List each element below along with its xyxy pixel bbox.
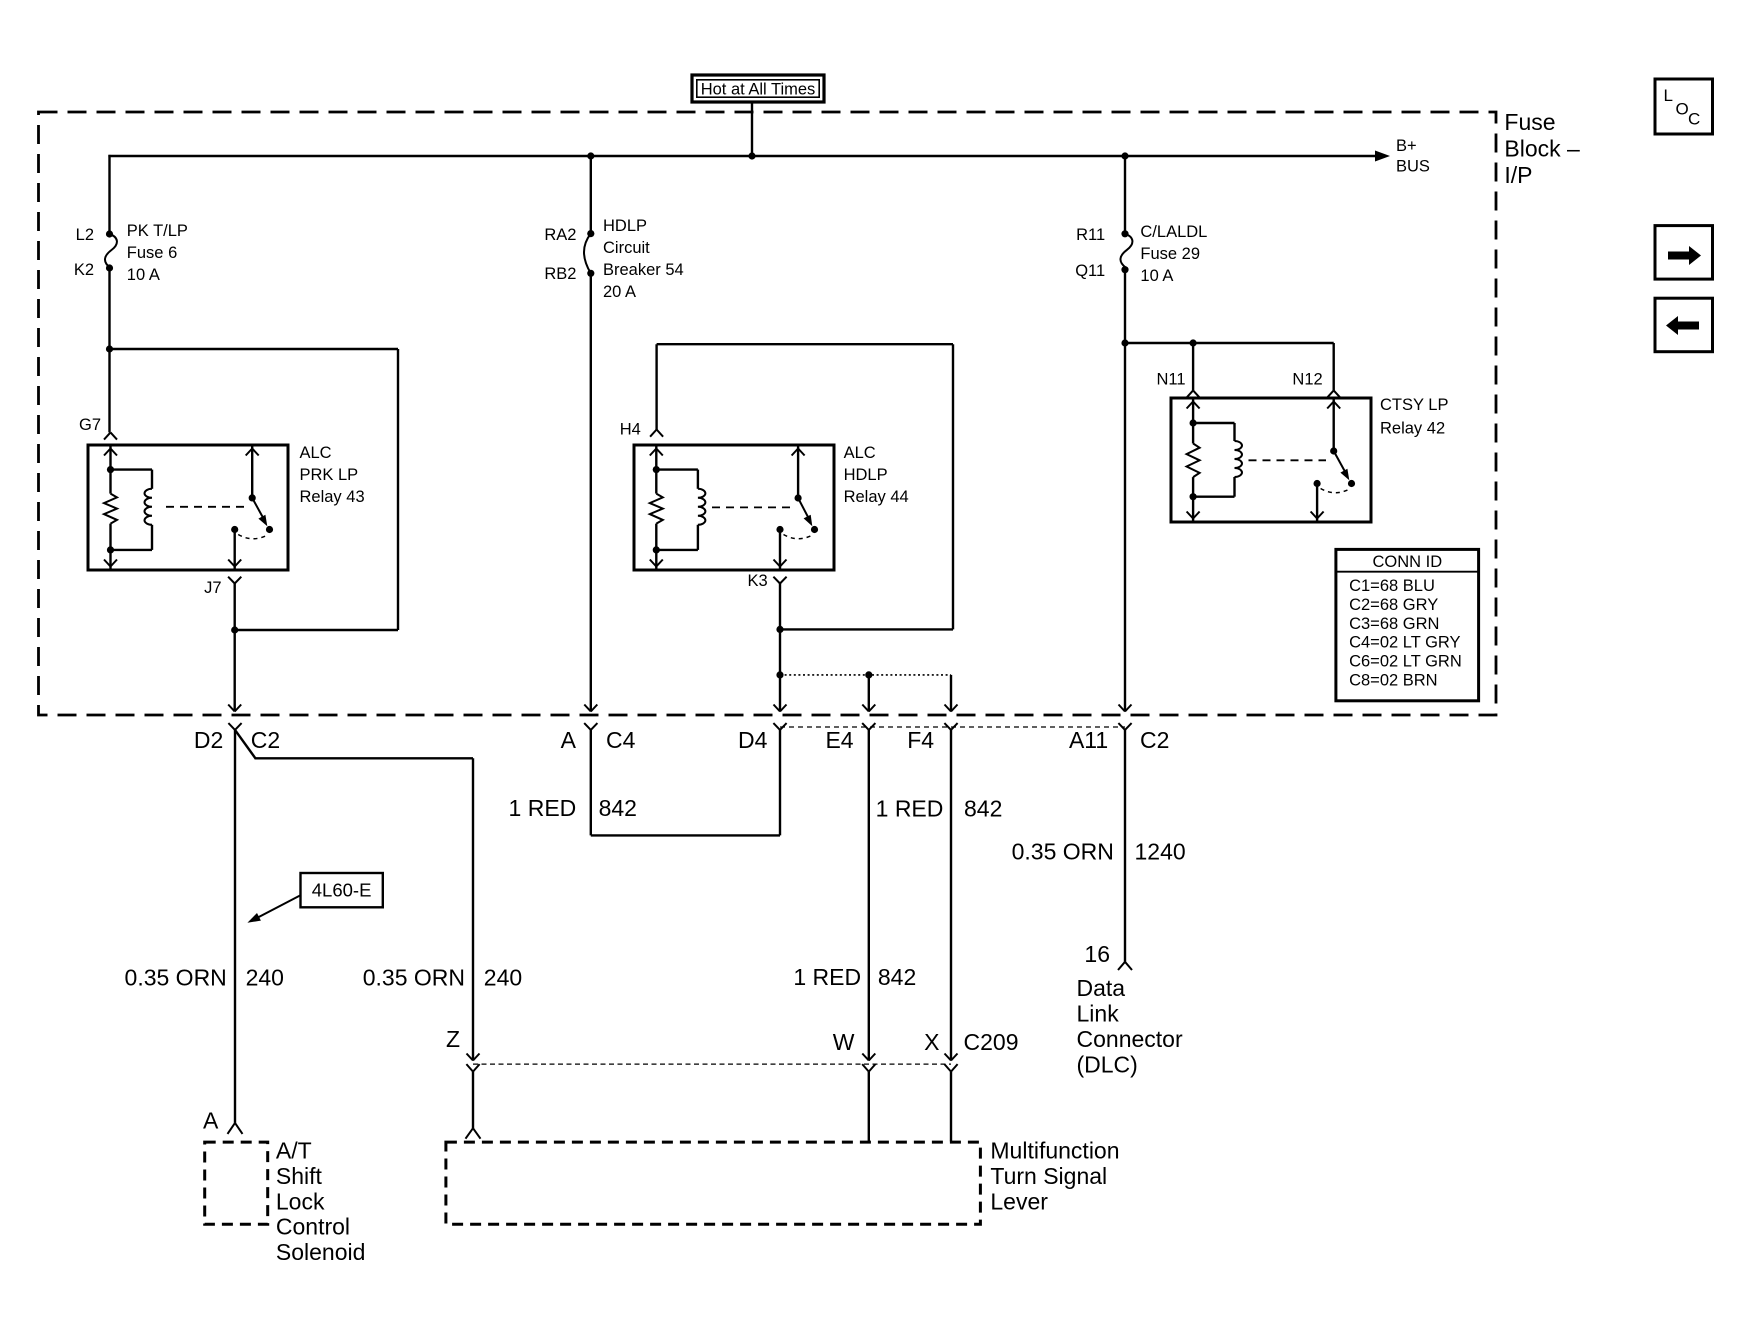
svg-text:ALC: ALC <box>300 444 332 462</box>
svg-text:A/T: A/T <box>276 1138 312 1164</box>
svg-text:Shift: Shift <box>276 1163 323 1189</box>
svg-text:Relay 42: Relay 42 <box>1380 420 1445 438</box>
svg-text:PK T/LP: PK T/LP <box>127 222 188 240</box>
svg-text:W: W <box>833 1029 855 1055</box>
svg-text:Multifunction: Multifunction <box>990 1138 1119 1164</box>
svg-text:C4=02 LT GRY: C4=02 LT GRY <box>1349 634 1460 652</box>
svg-text:Hot at All Times: Hot at All Times <box>701 81 816 99</box>
svg-text:10 A: 10 A <box>127 266 160 284</box>
svg-text:Relay 43: Relay 43 <box>300 488 365 506</box>
svg-text:K2: K2 <box>74 261 94 279</box>
svg-text:842: 842 <box>964 796 1002 822</box>
svg-text:16: 16 <box>1084 941 1110 967</box>
svg-text:N12: N12 <box>1292 371 1322 389</box>
svg-text:D2: D2 <box>194 727 223 753</box>
svg-text:Connector: Connector <box>1077 1026 1183 1052</box>
svg-text:O: O <box>1676 100 1689 119</box>
svg-text:Fuse 29: Fuse 29 <box>1140 245 1200 263</box>
svg-text:X: X <box>924 1029 939 1055</box>
svg-text:Lever: Lever <box>990 1189 1048 1215</box>
svg-text:1 RED: 1 RED <box>876 796 944 822</box>
svg-text:C: C <box>1688 110 1700 129</box>
svg-text:HDLP: HDLP <box>603 217 647 235</box>
svg-text:E4: E4 <box>825 727 853 753</box>
svg-text:I/P: I/P <box>1504 162 1532 188</box>
svg-text:0.35 ORN: 0.35 ORN <box>363 965 465 991</box>
svg-text:Fuse 6: Fuse 6 <box>127 244 177 262</box>
svg-text:F4: F4 <box>907 727 934 753</box>
svg-text:C2: C2 <box>1140 727 1169 753</box>
svg-text:C8=02 BRN: C8=02 BRN <box>1349 672 1438 690</box>
svg-text:C209: C209 <box>964 1029 1019 1055</box>
svg-text:Q11: Q11 <box>1075 262 1105 280</box>
svg-text:20 A: 20 A <box>603 283 636 301</box>
svg-text:Fuse: Fuse <box>1504 109 1555 135</box>
svg-text:ALC: ALC <box>844 444 876 462</box>
svg-text:C1=68 BLU: C1=68 BLU <box>1349 577 1435 595</box>
svg-text:0.35 ORN: 0.35 ORN <box>125 965 227 991</box>
svg-text:R11: R11 <box>1076 226 1105 244</box>
svg-text:Link: Link <box>1077 1001 1120 1027</box>
svg-text:842: 842 <box>599 795 637 821</box>
svg-text:Control: Control <box>276 1214 350 1240</box>
svg-text:Lock: Lock <box>276 1188 325 1214</box>
svg-text:G7: G7 <box>79 416 101 434</box>
svg-text:L: L <box>1664 86 1673 105</box>
svg-text:Breaker 54: Breaker 54 <box>603 261 684 279</box>
svg-text:C6=02 LT GRN: C6=02 LT GRN <box>1349 653 1462 671</box>
svg-text:J7: J7 <box>204 579 221 597</box>
svg-text:D4: D4 <box>738 727 768 753</box>
svg-text:0.35 ORN: 0.35 ORN <box>1012 839 1114 865</box>
svg-text:A: A <box>561 727 577 753</box>
svg-text:CTSY LP: CTSY LP <box>1380 396 1448 414</box>
svg-text:RB2: RB2 <box>544 265 576 283</box>
svg-text:842: 842 <box>878 964 916 990</box>
svg-text:10 A: 10 A <box>1140 267 1173 285</box>
svg-text:HDLP: HDLP <box>844 466 888 484</box>
svg-text:Z: Z <box>446 1026 460 1052</box>
svg-text:C2: C2 <box>251 727 280 753</box>
svg-text:1240: 1240 <box>1135 839 1186 865</box>
svg-text:Block –: Block – <box>1504 136 1580 162</box>
svg-text:A: A <box>203 1108 219 1134</box>
svg-text:Solenoid: Solenoid <box>276 1239 366 1265</box>
svg-text:H4: H4 <box>620 421 641 439</box>
svg-text:C4: C4 <box>606 727 636 753</box>
svg-text:L2: L2 <box>76 226 94 244</box>
svg-text:PRK LP: PRK LP <box>300 466 359 484</box>
svg-text:1 RED: 1 RED <box>793 964 861 990</box>
svg-text:240: 240 <box>246 965 284 991</box>
svg-text:1 RED: 1 RED <box>509 795 577 821</box>
svg-text:B+: B+ <box>1396 137 1417 155</box>
svg-text:Turn Signal: Turn Signal <box>990 1163 1107 1189</box>
svg-text:(DLC): (DLC) <box>1077 1051 1138 1077</box>
svg-text:Circuit: Circuit <box>603 239 650 257</box>
svg-text:RA2: RA2 <box>544 226 576 244</box>
svg-text:K3: K3 <box>748 572 768 590</box>
svg-text:C2=68 GRY: C2=68 GRY <box>1349 596 1438 614</box>
svg-text:4L60-E: 4L60-E <box>312 880 372 901</box>
svg-text:N11: N11 <box>1156 371 1185 389</box>
svg-text:Data: Data <box>1077 975 1126 1001</box>
svg-text:BUS: BUS <box>1396 158 1430 176</box>
svg-text:A11: A11 <box>1069 727 1108 753</box>
svg-text:240: 240 <box>484 965 522 991</box>
svg-text:Relay 44: Relay 44 <box>844 488 909 506</box>
svg-text:C/LALDL: C/LALDL <box>1140 223 1207 241</box>
svg-text:C3=68 GRN: C3=68 GRN <box>1349 615 1439 633</box>
svg-text:CONN ID: CONN ID <box>1372 553 1442 571</box>
